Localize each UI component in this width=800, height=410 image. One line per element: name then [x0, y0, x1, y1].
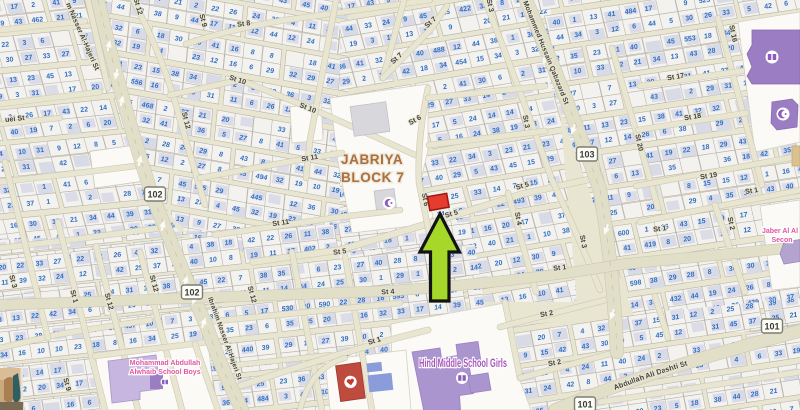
svg-text:13: 13	[177, 196, 185, 204]
svg-text:4: 4	[215, 202, 221, 210]
svg-text:11: 11	[308, 23, 316, 31]
svg-text:38: 38	[153, 10, 161, 18]
svg-text:5: 5	[296, 145, 301, 153]
svg-text:34: 34	[189, 74, 197, 82]
svg-text:32: 32	[251, 209, 259, 217]
svg-text:16: 16	[229, 60, 237, 68]
svg-text:8: 8	[250, 49, 255, 57]
svg-text:6: 6	[135, 28, 140, 36]
svg-text:18: 18	[156, 32, 164, 40]
svg-text:33: 33	[277, 126, 285, 134]
svg-text:2: 2	[162, 105, 168, 113]
svg-text:8: 8	[219, 151, 224, 159]
svg-text:32: 32	[275, 177, 283, 185]
svg-text:9: 9	[197, 219, 202, 227]
svg-text:18: 18	[308, 59, 316, 67]
svg-text:2: 2	[193, 2, 199, 10]
svg-text:3: 3	[307, 95, 312, 103]
svg-text:6: 6	[249, 64, 254, 72]
svg-text:16: 16	[150, 82, 158, 90]
svg-text:12: 12	[160, 156, 168, 164]
svg-text:8: 8	[269, 52, 274, 60]
svg-text:19: 19	[294, 180, 302, 188]
svg-text:30: 30	[174, 35, 182, 43]
svg-text:19: 19	[331, 187, 339, 195]
svg-text:32: 32	[142, 117, 150, 125]
svg-text:8: 8	[259, 138, 264, 146]
svg-text:36: 36	[197, 127, 205, 135]
svg-text:2: 2	[179, 159, 185, 167]
svg-text:11: 11	[230, 96, 238, 104]
svg-text:32: 32	[114, 25, 122, 33]
svg-text:36: 36	[307, 204, 315, 212]
svg-text:12: 12	[210, 57, 218, 65]
svg-text:6: 6	[249, 100, 254, 108]
svg-text:5: 5	[222, 131, 227, 139]
svg-text:12: 12	[287, 34, 295, 42]
svg-text:19: 19	[132, 43, 140, 51]
svg-text:38: 38	[171, 70, 179, 78]
svg-text:15: 15	[152, 67, 160, 75]
svg-text:2: 2	[144, 138, 150, 146]
svg-text:31: 31	[206, 92, 214, 100]
svg-text:32: 32	[289, 71, 297, 79]
svg-text:9: 9	[174, 14, 179, 22]
svg-text:16: 16	[230, 45, 238, 53]
svg-text:12: 12	[289, 201, 297, 209]
svg-text:10: 10	[312, 183, 320, 191]
